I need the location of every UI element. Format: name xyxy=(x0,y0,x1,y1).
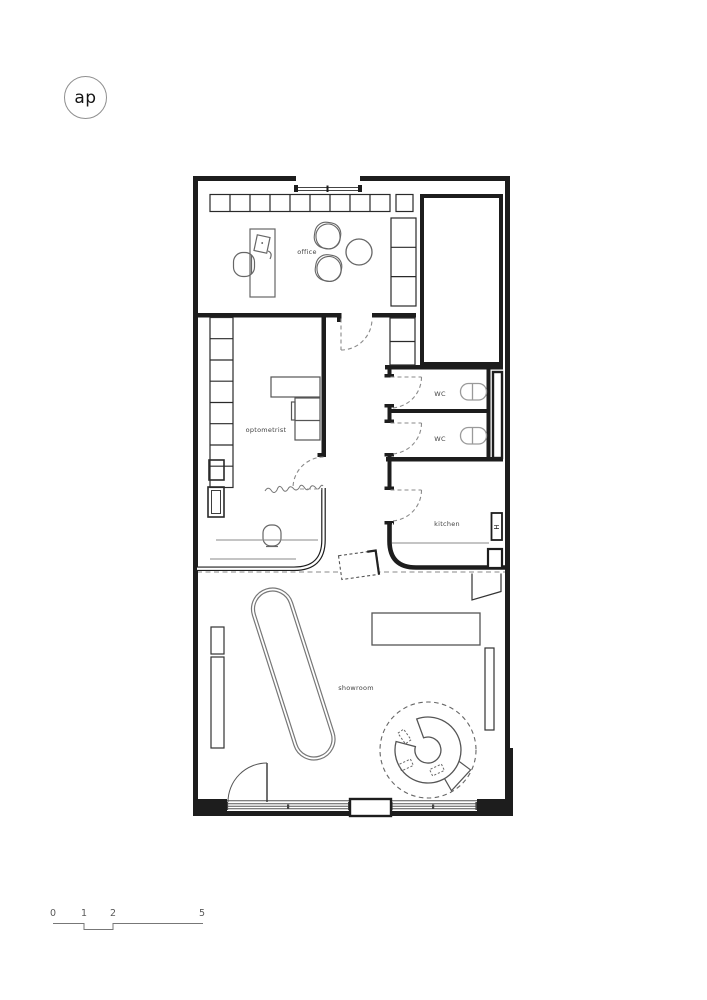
pivot-door xyxy=(339,550,380,579)
storage-room xyxy=(422,196,501,364)
kitchen-appliance: H xyxy=(488,513,502,568)
meeting-table xyxy=(346,239,372,265)
scale-tick-0: 0 xyxy=(50,908,56,919)
office-shelf-row xyxy=(210,195,413,212)
entrance-door xyxy=(228,763,267,802)
room-label-office: office xyxy=(297,248,316,256)
optometrist-shelves xyxy=(210,318,233,488)
optometrist-stool xyxy=(263,525,281,547)
scale-tick-1: 1 xyxy=(81,908,87,919)
laptop-icon xyxy=(254,235,270,253)
display-table xyxy=(372,613,480,645)
kitchen-appliance-symbol: H xyxy=(492,524,500,529)
display-capsule xyxy=(246,583,340,766)
scale-tick-5: 5 xyxy=(199,908,205,919)
room-label-kitchen: kitchen xyxy=(434,520,460,528)
office-east-shelves xyxy=(390,218,416,365)
floor-plan-drawing: H xyxy=(0,0,707,1000)
circular-display xyxy=(380,702,476,798)
service-shaft xyxy=(493,372,502,458)
meeting-chairs xyxy=(313,221,344,283)
room-label-wc-bottom: WC xyxy=(434,435,445,443)
room-label-showroom: showroom xyxy=(338,684,374,692)
room-label-optometrist: optometrist xyxy=(246,426,287,434)
corner-ramp xyxy=(472,574,501,601)
door-swings xyxy=(293,319,422,522)
desk-chair xyxy=(234,253,255,277)
office-desk xyxy=(250,229,275,297)
scale-tick-2: 2 xyxy=(110,908,116,919)
top-window xyxy=(294,185,362,192)
scale-bar-line xyxy=(53,924,203,930)
room-label-wc-top: WC xyxy=(434,390,445,398)
page: { "logo": { "text": "ap" }, "rooms": { "… xyxy=(0,0,707,1000)
toilet-icons xyxy=(461,384,487,445)
